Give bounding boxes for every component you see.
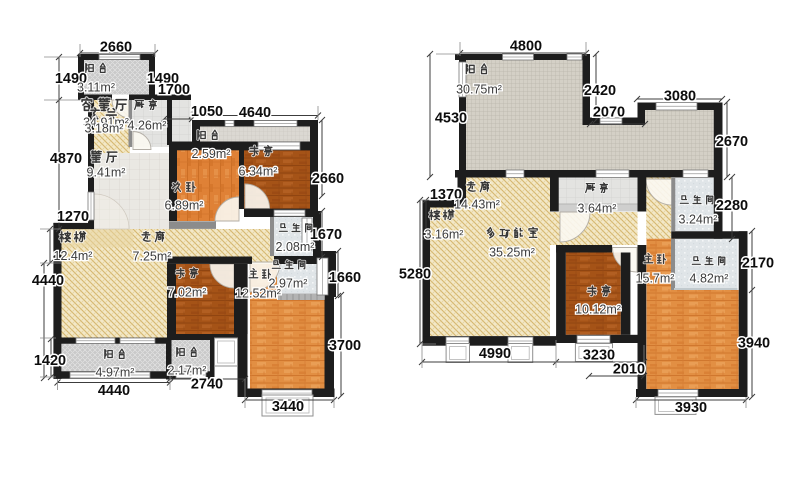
svg-text:7.25m²: 7.25m² [133, 250, 172, 264]
svg-text:2170: 2170 [742, 256, 774, 272]
svg-text:1660: 1660 [329, 270, 361, 286]
svg-text:3930: 3930 [675, 400, 707, 416]
svg-text:1050: 1050 [191, 104, 223, 120]
svg-text:4870: 4870 [50, 151, 82, 167]
svg-text:2.59m²: 2.59m² [192, 147, 231, 161]
svg-text:1670: 1670 [310, 227, 342, 243]
svg-text:3.64m²: 3.64m² [578, 202, 617, 216]
svg-text:2.97m²: 2.97m² [269, 277, 308, 291]
svg-text:10.12m²: 10.12m² [575, 303, 621, 317]
svg-text:3.18m²: 3.18m² [85, 122, 124, 136]
svg-text:4990: 4990 [479, 346, 511, 362]
svg-text:6.89m²: 6.89m² [165, 199, 204, 213]
svg-text:2670: 2670 [716, 134, 748, 150]
svg-text:9.41m²: 9.41m² [87, 166, 126, 180]
svg-text:30.75m²: 30.75m² [456, 83, 502, 97]
svg-text:1420: 1420 [34, 353, 66, 369]
svg-text:3.24m²: 3.24m² [679, 213, 718, 227]
svg-text:1270: 1270 [57, 209, 89, 225]
svg-text:3.11m²: 3.11m² [77, 81, 115, 95]
svg-text:4800: 4800 [510, 39, 542, 55]
svg-text:2010: 2010 [613, 362, 645, 378]
svg-text:3080: 3080 [664, 89, 696, 105]
svg-text:7.02m²: 7.02m² [168, 286, 207, 300]
svg-text:2070: 2070 [593, 105, 625, 121]
svg-text:2420: 2420 [584, 83, 616, 99]
svg-text:2.08m²: 2.08m² [276, 240, 315, 254]
svg-text:2660: 2660 [312, 171, 344, 187]
svg-text:2280: 2280 [716, 198, 748, 214]
svg-text:6.34m²: 6.34m² [239, 165, 278, 179]
svg-text:3.16m²: 3.16m² [425, 228, 464, 242]
svg-text:12.4m²: 12.4m² [54, 249, 93, 263]
svg-text:4.26m²: 4.26m² [128, 119, 167, 133]
svg-text:1700: 1700 [158, 82, 190, 98]
svg-text:14.43m²: 14.43m² [454, 198, 500, 212]
svg-text:3940: 3940 [738, 336, 770, 352]
svg-text:3700: 3700 [329, 338, 361, 354]
svg-text:2660: 2660 [100, 40, 132, 56]
svg-text:5280: 5280 [399, 267, 431, 283]
svg-text:4.82m²: 4.82m² [690, 272, 729, 286]
svg-text:15.7m²: 15.7m² [636, 272, 675, 286]
svg-text:4640: 4640 [239, 105, 271, 121]
svg-text:3440: 3440 [272, 399, 304, 415]
svg-text:4.97m²: 4.97m² [96, 366, 135, 380]
svg-text:3230: 3230 [583, 348, 615, 364]
svg-text:4440: 4440 [32, 273, 64, 289]
svg-text:2740: 2740 [191, 377, 223, 393]
svg-text:4440: 4440 [98, 383, 130, 399]
svg-text:4530: 4530 [435, 111, 467, 127]
svg-text:35.25m²: 35.25m² [489, 246, 535, 260]
svg-text:2.17m²: 2.17m² [168, 364, 207, 378]
